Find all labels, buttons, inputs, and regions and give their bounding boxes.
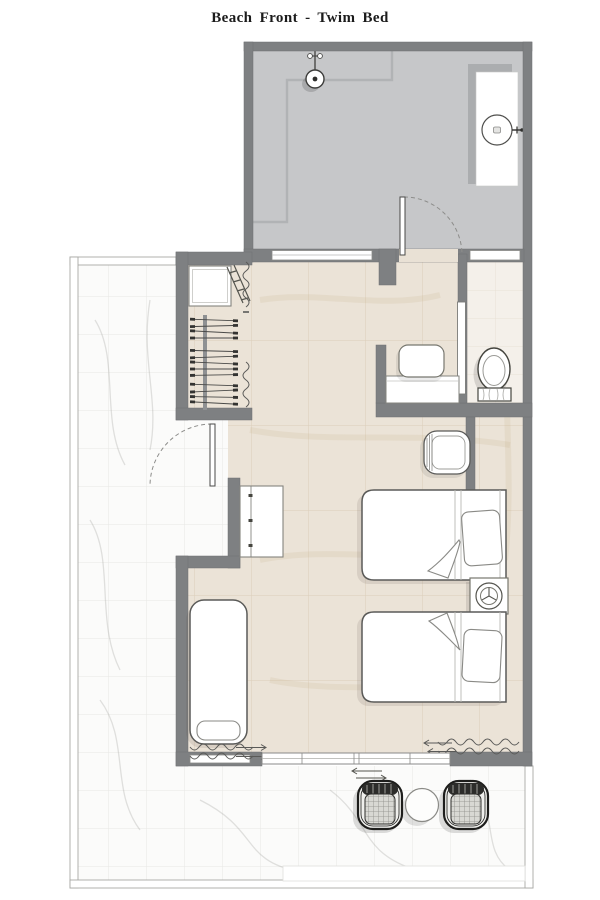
floor-plan-svg — [0, 0, 600, 900]
wall-closet-left — [176, 252, 188, 420]
bed-1 — [357, 490, 506, 584]
wall-nook-stub — [376, 345, 386, 403]
bed-2-pillow — [462, 629, 503, 683]
wall-jog-vertical — [228, 478, 240, 568]
bottom-step — [283, 866, 525, 881]
armchair — [420, 431, 470, 478]
rattan-chair-2 — [439, 781, 488, 833]
wall-bottom-right — [450, 752, 532, 766]
daybed — [186, 600, 247, 748]
wall-top — [244, 42, 532, 51]
wall-left-upper — [244, 42, 253, 262]
entry-doorway — [399, 249, 458, 262]
stool — [399, 345, 444, 377]
floor-plan-page: Beach Front - Twim Bed — [0, 0, 600, 900]
luggage-bench — [189, 266, 231, 306]
wall-column — [379, 249, 396, 285]
coffee-table — [406, 789, 439, 822]
terrace-furniture — [353, 781, 488, 833]
rattan-chair-1 — [353, 781, 402, 833]
daybed-pillow — [197, 721, 240, 740]
vanity-counter — [468, 64, 524, 186]
bed-1-pillow — [461, 510, 503, 567]
entry-door-leaf — [400, 197, 405, 255]
wall-nook-bottom — [376, 403, 532, 417]
minibar-cabinet — [240, 486, 283, 557]
entry-bath-area — [250, 48, 525, 252]
lamp-icon — [476, 583, 502, 609]
bed-2 — [357, 612, 506, 706]
terrace-jog-floor — [176, 420, 228, 556]
wall-closet-bottom — [176, 408, 252, 420]
window-wc — [470, 251, 520, 261]
terrace-door-leaf — [210, 424, 215, 486]
